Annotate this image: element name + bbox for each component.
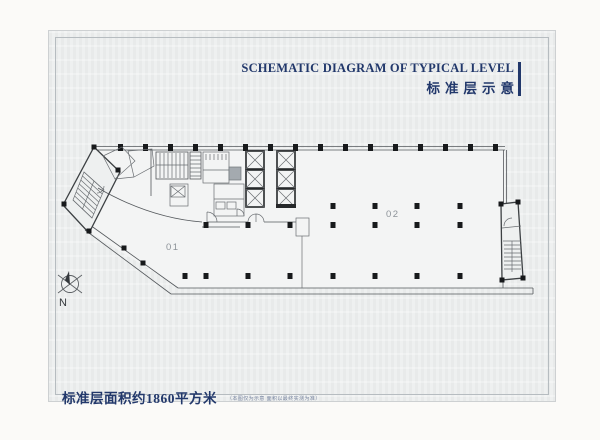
north-label: N	[59, 297, 67, 309]
unit-02-label: 02	[386, 209, 400, 220]
area-text: 标准层面积约1860平方米	[62, 387, 217, 407]
compass-icon: N	[58, 271, 82, 309]
unit-01-label: 01	[166, 242, 180, 253]
footer: 标准层面积约1860平方米（本图仅为示意 面积以最终实测为准）	[62, 387, 321, 408]
fine-print: （本图仅为示意 面积以最终实测为准）	[227, 396, 321, 402]
right-stair-core	[499, 200, 526, 283]
floorplan-drawing: 01 02 N	[0, 0, 600, 440]
duct-shaft	[229, 167, 241, 180]
